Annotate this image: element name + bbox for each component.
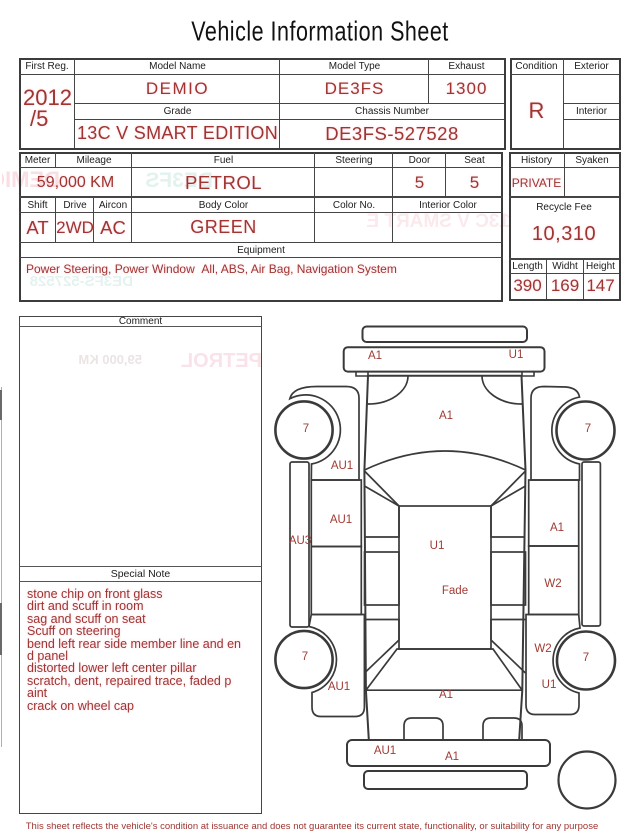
svg-text:AU1: AU1 [330, 514, 352, 526]
svg-text:7: 7 [302, 651, 308, 663]
svg-text:A1: A1 [439, 410, 453, 422]
svg-text:U1: U1 [542, 679, 557, 691]
svg-text:A1: A1 [439, 689, 453, 701]
svg-text:7: 7 [583, 652, 589, 664]
svg-text:A1: A1 [550, 522, 564, 534]
svg-text:AU1: AU1 [374, 745, 396, 757]
svg-text:7: 7 [303, 423, 309, 435]
svg-text:AU1: AU1 [328, 681, 350, 693]
svg-text:7: 7 [585, 423, 591, 435]
svg-text:W2: W2 [534, 643, 551, 655]
svg-text:AU3: AU3 [289, 535, 311, 547]
svg-text:W2: W2 [544, 578, 561, 590]
svg-text:U1: U1 [509, 349, 524, 361]
svg-text:AU1: AU1 [331, 460, 353, 472]
svg-text:A1: A1 [445, 751, 459, 763]
svg-text:U1: U1 [430, 540, 445, 552]
svg-text:Fade: Fade [442, 585, 468, 597]
svg-text:A1: A1 [368, 350, 382, 362]
